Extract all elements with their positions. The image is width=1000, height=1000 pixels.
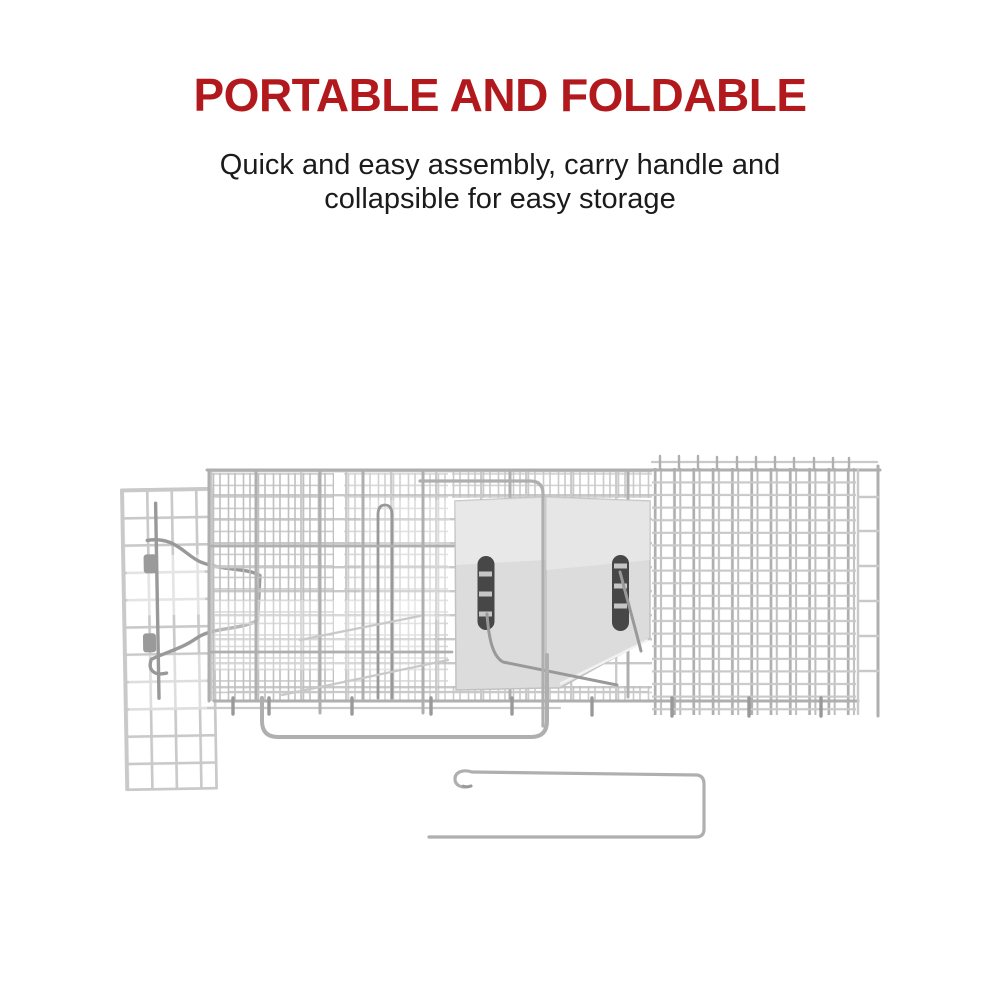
- trigger-rod-hook-tip: [463, 786, 471, 787]
- page-title: PORTABLE AND FOLDABLE: [0, 70, 1000, 120]
- plate-right-sheen: [546, 497, 650, 570]
- product-photo-folded-trap: [0, 430, 1000, 860]
- subtitle-line1: Quick and easy assembly, carry handle an…: [220, 149, 780, 181]
- body-mesh-folded-strips: [652, 468, 856, 715]
- trigger-rod: [429, 771, 704, 837]
- product-banner: PORTABLE AND FOLDABLE Quick and easy ass…: [0, 0, 1000, 1000]
- subtitle: Quick and easy assembly, carry handle an…: [0, 148, 1000, 216]
- body-haze: [360, 500, 450, 620]
- body-mesh-fine: [452, 471, 652, 498]
- left-panel-haze: [127, 554, 206, 615]
- subtitle-line2: collapsible for easy storage: [324, 183, 675, 215]
- latch-clip: [143, 633, 156, 652]
- right-end-panel-wires: [858, 470, 878, 714]
- left-panel-mesh: [121, 488, 216, 790]
- left-panel-haze: [128, 654, 207, 710]
- plate-left-sheen: [455, 497, 546, 565]
- latch-clip: [144, 554, 157, 573]
